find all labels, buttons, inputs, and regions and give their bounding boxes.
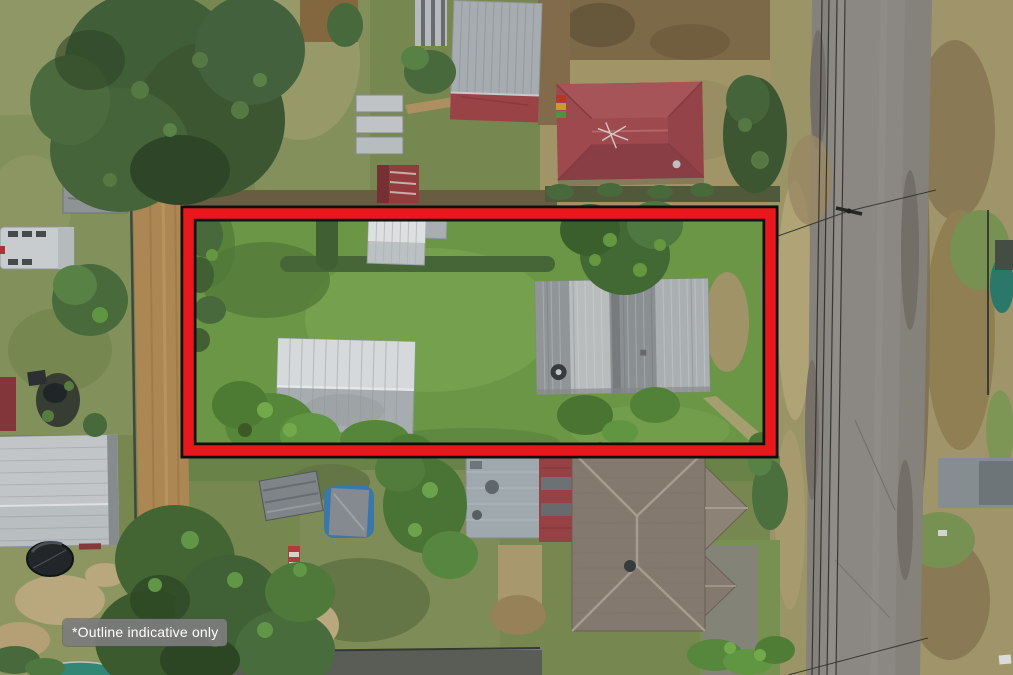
disclaimer-label: *Outline indicative only (63, 619, 227, 646)
aerial-scene (0, 0, 1013, 675)
aerial-photo: *Outline indicative only (0, 0, 1013, 675)
photo-grain (0, 0, 1013, 675)
